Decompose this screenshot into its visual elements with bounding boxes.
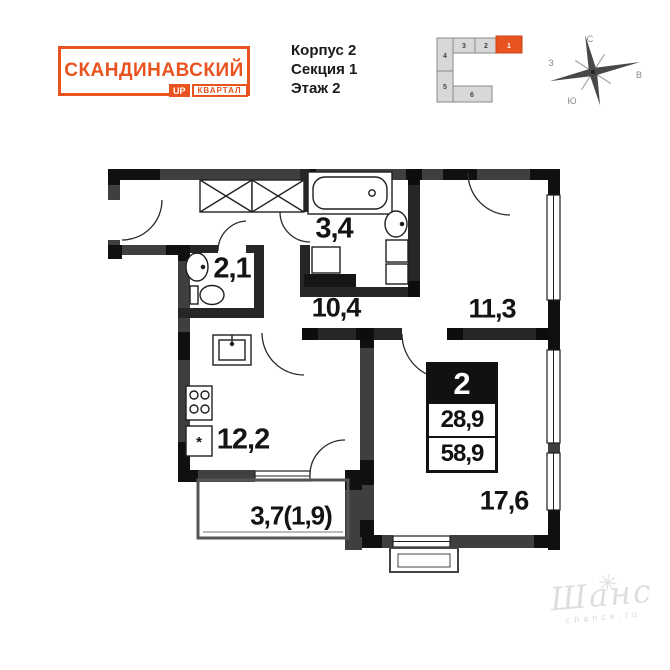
room-label-wc: 2,1 [213, 253, 250, 286]
bath-cabinet2-icon [386, 264, 408, 284]
apartment-info-box: 2 28,9 58,9 [426, 362, 498, 473]
washing-machine-icon [312, 247, 340, 273]
rooms-count: 2 [429, 365, 495, 402]
entry-door-arc [122, 200, 162, 240]
bathtub-icon [308, 172, 392, 214]
floor-plan-page: СКАНДИНАВСКИЙ UP КВАРТАЛ Корпус 2 Секция… [0, 0, 670, 670]
room-label-hallway: 10,4 [312, 293, 361, 324]
ledge-outline [390, 548, 458, 572]
locator-block-5: 5 [443, 84, 447, 91]
bathroom-sink-icon [385, 211, 407, 237]
room-label-bedroom: 11,3 [468, 294, 515, 325]
locator-block-1: 1 [507, 43, 511, 50]
room-label-balcony: 3,7(1,9) [250, 501, 332, 532]
room-label-living: 17,6 [480, 486, 529, 517]
wardrobe-icon [200, 180, 304, 212]
locator-block-4: 4 [443, 53, 447, 60]
floor-plan-drawing: 3 2 1 4 5 6 С З В Ю [0, 0, 670, 670]
wc-door-arc [218, 221, 246, 251]
compass-north-label: С [587, 34, 594, 44]
fridge-symbol: * [196, 434, 202, 451]
locator-block-3: 3 [462, 43, 466, 50]
compass-rose: С З В Ю [542, 25, 647, 115]
living-area: 28,9 [429, 402, 495, 436]
room-label-bathroom: 3,4 [315, 213, 352, 246]
room-label-kitchen: 12,2 [217, 424, 269, 457]
stove-icon [186, 386, 212, 420]
locator-block-6: 6 [470, 92, 474, 99]
bath-cabinet-icon [386, 240, 408, 262]
toilet-icon [190, 286, 224, 305]
compass-south-label: Ю [567, 96, 576, 106]
compass-west-label: З [548, 58, 553, 68]
kitchen-sink-icon [213, 335, 251, 365]
balcony-door-arc [310, 440, 345, 475]
bathroom-door-arc [280, 212, 310, 242]
site-locator-diagram: 3 2 1 4 5 6 [437, 36, 522, 102]
kitchen-door-arc [262, 333, 304, 375]
locator-block-2: 2 [484, 43, 488, 50]
compass-east-label: В [636, 70, 642, 80]
total-area: 58,9 [429, 436, 495, 470]
wc-sink-icon [186, 253, 208, 281]
